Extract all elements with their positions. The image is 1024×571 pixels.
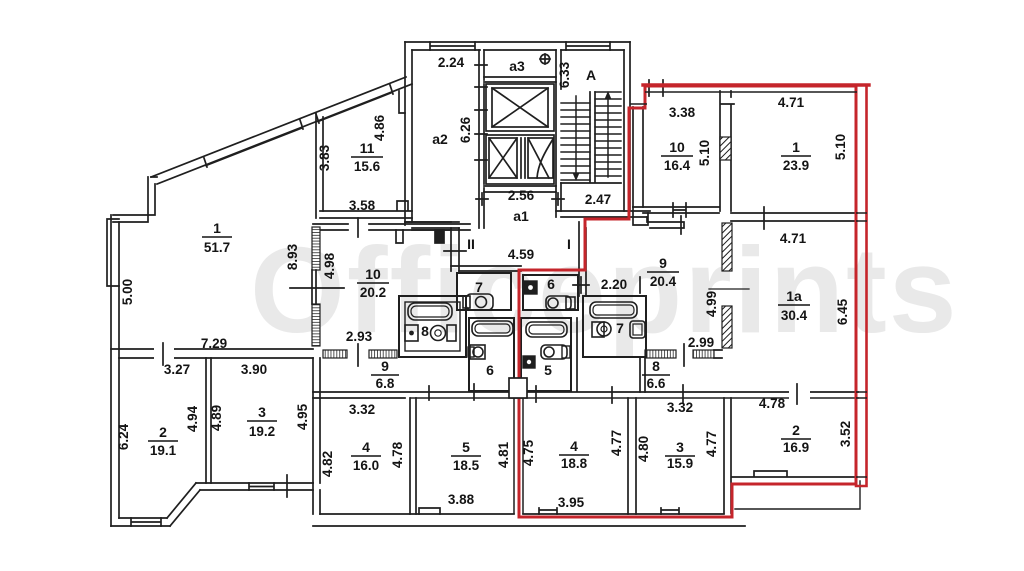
svg-text:4.99: 4.99	[704, 291, 719, 317]
svg-text:3: 3	[676, 439, 684, 455]
svg-text:8: 8	[421, 323, 429, 339]
svg-text:a3: a3	[509, 58, 525, 74]
svg-text:3.38: 3.38	[669, 105, 696, 120]
svg-text:4.78: 4.78	[390, 441, 405, 468]
svg-text:II: II	[467, 236, 475, 252]
svg-text:4.78: 4.78	[759, 396, 786, 411]
svg-text:a1: a1	[513, 208, 529, 224]
svg-text:2.99: 2.99	[688, 335, 714, 350]
svg-text:51.7: 51.7	[204, 240, 230, 255]
svg-text:6: 6	[547, 276, 555, 292]
svg-text:4.59: 4.59	[508, 247, 534, 262]
svg-text:5.00: 5.00	[120, 279, 135, 305]
svg-text:6.26: 6.26	[458, 116, 473, 143]
svg-text:6.33: 6.33	[557, 61, 572, 88]
svg-text:1a: 1a	[786, 288, 802, 304]
svg-text:4.71: 4.71	[778, 95, 805, 110]
svg-text:5: 5	[462, 439, 470, 455]
svg-text:4.95: 4.95	[295, 403, 310, 430]
svg-text:6.24: 6.24	[116, 423, 131, 450]
svg-text:2.20: 2.20	[601, 277, 627, 292]
svg-text:30.4: 30.4	[781, 308, 808, 323]
svg-text:4: 4	[570, 438, 578, 454]
svg-text:1: 1	[792, 139, 800, 155]
svg-text:2: 2	[792, 422, 800, 438]
svg-text:9: 9	[659, 255, 667, 271]
svg-text:2.47: 2.47	[585, 192, 611, 207]
svg-text:20.4: 20.4	[650, 274, 677, 289]
svg-text:3.32: 3.32	[349, 402, 375, 417]
svg-text:4.89: 4.89	[209, 405, 224, 431]
svg-text:4.71: 4.71	[780, 231, 807, 246]
svg-text:3.27: 3.27	[164, 362, 190, 377]
svg-text:15.9: 15.9	[667, 456, 693, 471]
svg-text:8.93: 8.93	[285, 243, 300, 270]
svg-text:3.90: 3.90	[241, 362, 267, 377]
svg-text:7: 7	[475, 279, 483, 295]
svg-text:7: 7	[616, 320, 624, 336]
svg-text:3: 3	[258, 404, 266, 420]
svg-text:3.88: 3.88	[448, 492, 475, 507]
svg-text:4.80: 4.80	[636, 436, 651, 462]
svg-text:I: I	[567, 236, 571, 252]
svg-text:19.2: 19.2	[249, 424, 275, 439]
svg-text:23.9: 23.9	[783, 158, 809, 173]
svg-text:6: 6	[486, 362, 494, 378]
svg-text:10: 10	[669, 139, 685, 155]
svg-text:8: 8	[652, 358, 660, 374]
svg-text:18.5: 18.5	[453, 458, 480, 473]
svg-text:3.83: 3.83	[317, 144, 332, 171]
svg-text:a2: a2	[432, 131, 448, 147]
svg-text:5.10: 5.10	[697, 140, 712, 166]
svg-text:7.29: 7.29	[201, 336, 227, 351]
svg-text:4.77: 4.77	[704, 431, 719, 457]
svg-text:1: 1	[213, 220, 221, 236]
svg-text:11: 11	[360, 140, 375, 156]
svg-text:15.6: 15.6	[354, 159, 381, 174]
svg-text:6.6: 6.6	[647, 376, 666, 391]
svg-text:4.86: 4.86	[372, 114, 387, 141]
svg-text:2.24: 2.24	[438, 55, 465, 70]
svg-text:3.52: 3.52	[838, 421, 853, 447]
svg-text:16.4: 16.4	[664, 158, 691, 173]
svg-text:2.93: 2.93	[346, 329, 373, 344]
svg-text:A: A	[586, 67, 596, 83]
svg-text:4: 4	[362, 439, 370, 455]
svg-text:3.95: 3.95	[558, 495, 585, 510]
svg-text:3.58: 3.58	[349, 198, 376, 213]
svg-text:3.32: 3.32	[667, 400, 693, 415]
svg-text:9: 9	[381, 358, 389, 374]
svg-text:6.45: 6.45	[835, 298, 850, 325]
svg-text:4.75: 4.75	[521, 439, 536, 466]
svg-text:20.2: 20.2	[360, 285, 386, 300]
svg-text:19.1: 19.1	[150, 443, 177, 458]
svg-text:2.56: 2.56	[508, 188, 535, 203]
svg-text:5.10: 5.10	[833, 134, 848, 160]
svg-text:16.9: 16.9	[783, 440, 809, 455]
svg-text:4.94: 4.94	[185, 405, 200, 432]
svg-text:4.77: 4.77	[609, 430, 624, 456]
svg-text:16.0: 16.0	[353, 458, 379, 473]
svg-text:18.8: 18.8	[561, 456, 588, 471]
svg-text:5: 5	[544, 362, 552, 378]
svg-text:6.8: 6.8	[376, 376, 395, 391]
svg-text:2: 2	[159, 424, 167, 440]
svg-text:4.82: 4.82	[320, 451, 335, 477]
svg-text:4.81: 4.81	[496, 441, 511, 468]
svg-text:4.98: 4.98	[322, 252, 337, 279]
svg-text:10: 10	[365, 266, 381, 282]
